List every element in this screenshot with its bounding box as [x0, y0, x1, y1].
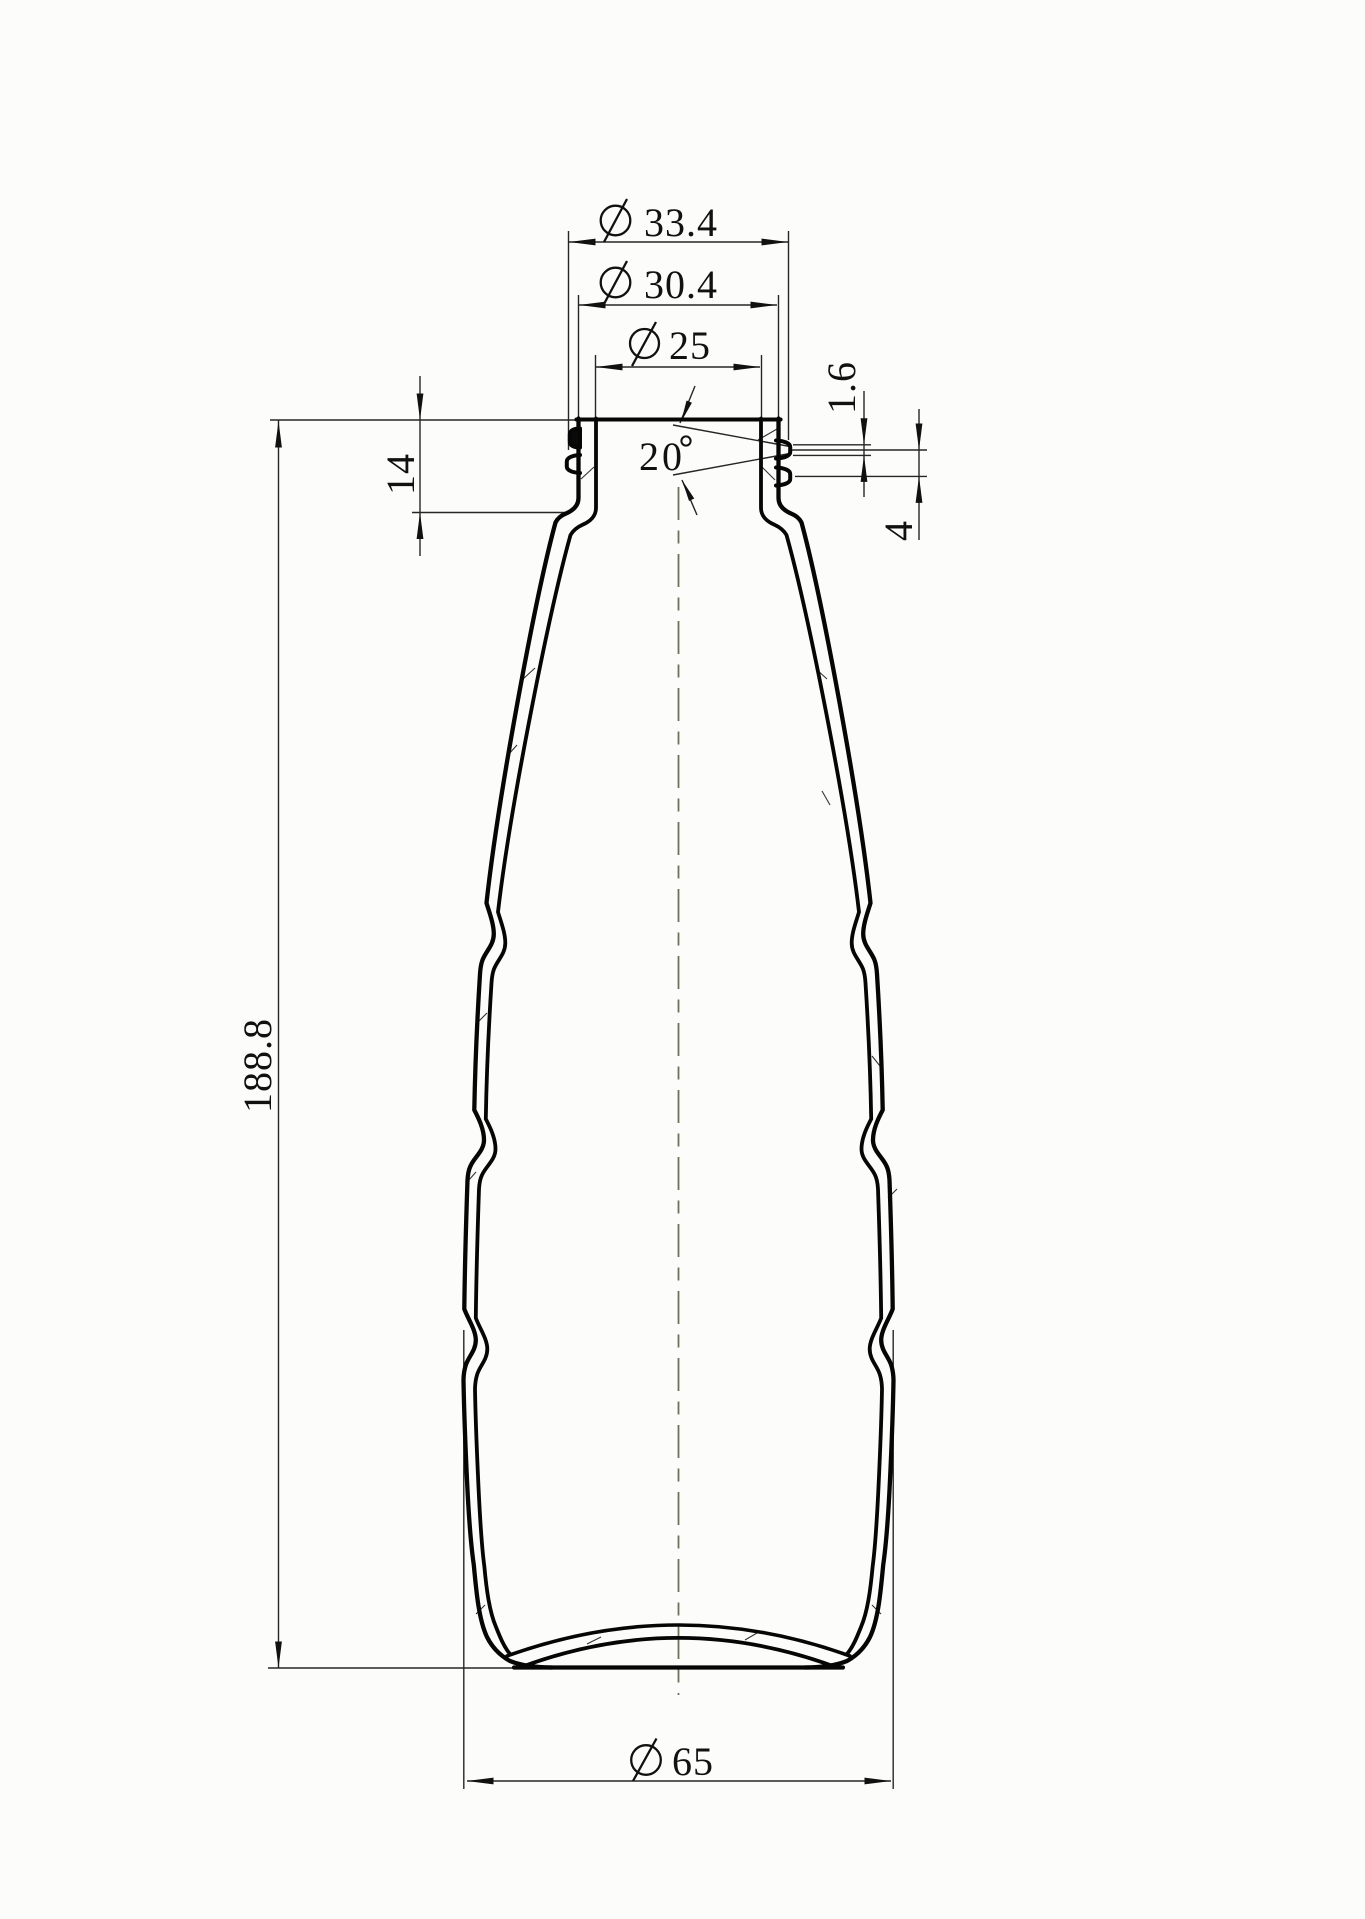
svg-text:14: 14	[378, 453, 423, 495]
svg-text:30.4: 30.4	[644, 262, 718, 307]
svg-text:4: 4	[876, 520, 921, 541]
svg-text:20: 20	[639, 434, 685, 479]
svg-text:33.4: 33.4	[644, 200, 718, 245]
svg-text:25: 25	[669, 323, 711, 368]
svg-text:1.6: 1.6	[819, 361, 864, 414]
svg-text:188.8: 188.8	[235, 1018, 280, 1113]
svg-text:65: 65	[672, 1739, 714, 1784]
